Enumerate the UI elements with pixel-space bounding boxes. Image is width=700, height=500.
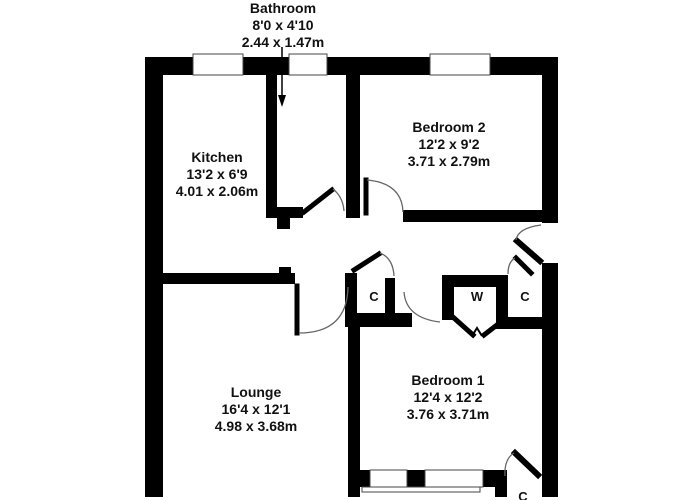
room-dim-imperial: 8'0 x 4'10	[242, 17, 325, 34]
bedroom2-window	[430, 54, 490, 75]
entry-door-leaf	[517, 241, 540, 261]
bedroom1-window-sill	[362, 487, 480, 492]
bedroom1-label: Bedroom 1 12'4 x 12'2 3.76 x 3.71m	[407, 372, 490, 423]
room-name: Bedroom 1	[407, 372, 490, 389]
entry-door-swing	[516, 225, 541, 240]
room-dim-metric: 4.01 x 2.06m	[176, 183, 259, 200]
room-dim-metric: 3.76 x 3.71m	[407, 406, 490, 423]
bedroom1-closet-letter: C	[518, 490, 527, 500]
arrow-head-icon	[278, 95, 286, 107]
wardrobe-door-notch	[472, 328, 482, 336]
bedroom1-closet-door-leaf	[515, 453, 538, 475]
bedroom1-window-left	[370, 470, 407, 487]
bathroom-door-leaf	[304, 190, 332, 212]
lounge-label: Lounge 16'4 x 12'1 4.98 x 3.68m	[215, 384, 298, 435]
bedroom2-label: Bedroom 2 12'2 x 9'2 3.71 x 2.79m	[408, 119, 491, 170]
floor-plan: Bathroom 8'0 x 4'10 2.44 x 1.47m Kitchen…	[0, 0, 700, 500]
room-name: Bathroom	[242, 0, 325, 17]
wardrobe-door-left-leaf	[454, 318, 473, 335]
floor-plan-drawing	[0, 0, 700, 500]
room-dim-imperial: 12'4 x 12'2	[407, 389, 490, 406]
bathroom-door-swing	[333, 189, 344, 211]
wardrobe-letter: W	[471, 290, 483, 304]
bedroom1-window-right	[425, 470, 483, 487]
hall-closet-left-letter: C	[369, 290, 378, 304]
room-name: Lounge	[215, 384, 298, 401]
room-dim-metric: 4.98 x 3.68m	[215, 418, 298, 435]
walls	[145, 57, 558, 497]
room-dim-metric: 2.44 x 1.47m	[242, 34, 325, 51]
room-name: Kitchen	[176, 149, 259, 166]
bathroom-label: Bathroom 8'0 x 4'10 2.44 x 1.47m	[242, 0, 325, 51]
kitchen-label: Kitchen 13'2 x 6'9 4.01 x 2.06m	[176, 149, 259, 200]
hall-closet-left-door-leaf	[354, 254, 379, 270]
hall-closet-right-letter: C	[520, 290, 529, 304]
bathroom-window	[289, 54, 327, 75]
hall-closet-right-door-swing	[508, 258, 515, 274]
room-dim-imperial: 16'4 x 12'1	[215, 401, 298, 418]
hall-closet-left-door-swing	[380, 253, 394, 276]
hall-closet-right-door-leaf	[516, 258, 531, 273]
room-name: Bedroom 2	[408, 119, 491, 136]
room-dim-metric: 3.71 x 2.79m	[408, 153, 491, 170]
room-dim-imperial: 12'2 x 9'2	[408, 136, 491, 153]
bedroom2-door-swing	[367, 180, 403, 212]
lounge-door-swing	[299, 287, 348, 333]
room-dim-imperial: 13'2 x 6'9	[176, 166, 259, 183]
kitchen-window	[193, 54, 243, 75]
bathroom-label-arrow	[278, 47, 286, 107]
